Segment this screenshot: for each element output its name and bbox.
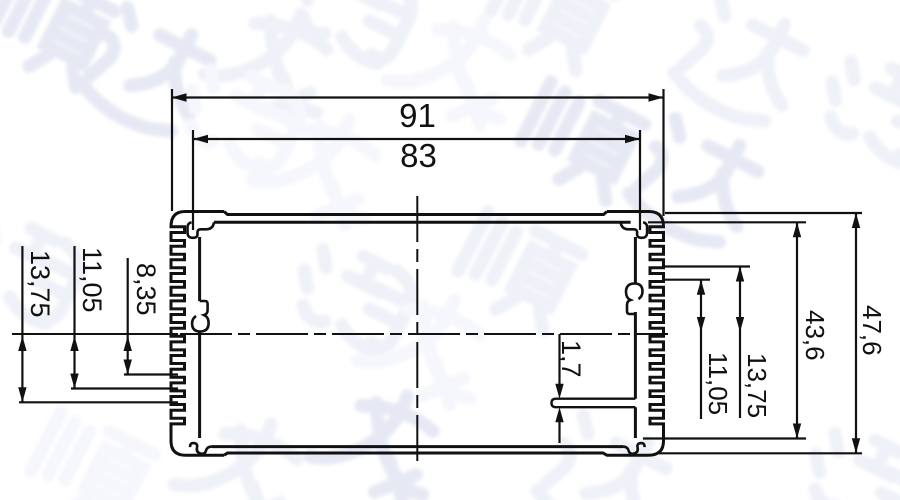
svg-text:83: 83 [400, 137, 437, 174]
svg-text:13,75: 13,75 [25, 250, 55, 318]
svg-text:11,05: 11,05 [77, 247, 107, 313]
svg-text:8,35: 8,35 [131, 263, 161, 316]
svg-text:91: 91 [399, 97, 436, 134]
svg-text:13,75: 13,75 [742, 353, 772, 418]
svg-text:11,05: 11,05 [703, 352, 733, 415]
svg-text:1,7: 1,7 [556, 340, 586, 378]
svg-text:43,6: 43,6 [800, 310, 830, 361]
svg-text:47,6: 47,6 [857, 305, 887, 356]
